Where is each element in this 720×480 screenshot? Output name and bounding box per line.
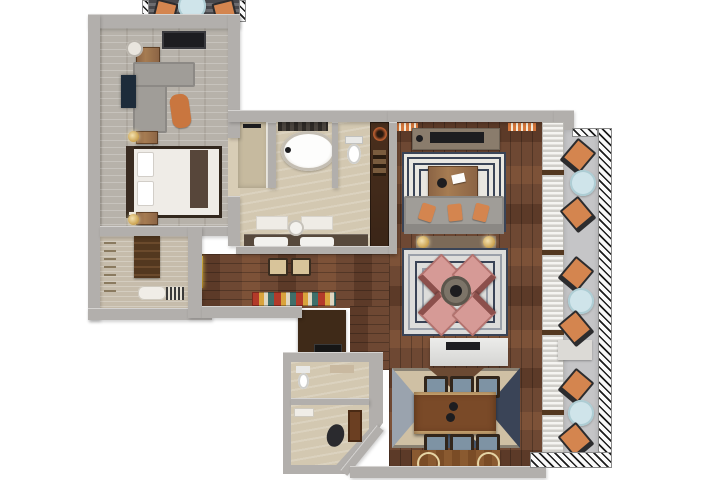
bed-pillow xyxy=(137,152,154,177)
vanity-stool xyxy=(288,220,304,236)
toilet-bowl xyxy=(347,144,361,164)
decor-bowl xyxy=(437,178,447,188)
closet-wardrobe xyxy=(134,236,160,278)
patio-table xyxy=(568,400,594,426)
wall xyxy=(188,226,202,318)
table-decor xyxy=(446,413,455,422)
copper-bowl xyxy=(373,127,387,141)
lounge-table-center xyxy=(450,285,462,297)
powder-shelf xyxy=(330,365,354,373)
nightstand-lamp xyxy=(128,131,139,142)
bath-mat xyxy=(301,216,333,230)
wall xyxy=(88,14,100,320)
table-decor xyxy=(449,402,458,411)
closet-striped-mat xyxy=(166,287,184,300)
window-mat xyxy=(508,123,536,131)
floor-plan-stage xyxy=(0,0,720,480)
powder-toilet-bowl xyxy=(298,373,309,389)
hall-stool xyxy=(291,258,311,276)
tv-screen xyxy=(430,132,484,143)
shower xyxy=(238,122,268,188)
balcony-railing-right xyxy=(598,128,612,468)
bed-headboard xyxy=(126,146,134,212)
console-lamp xyxy=(483,236,495,248)
wall xyxy=(389,122,397,254)
closet-bench-pillows xyxy=(138,286,166,300)
tub-ledge xyxy=(278,122,328,131)
wall xyxy=(202,306,302,318)
speaker xyxy=(416,135,423,142)
toilet xyxy=(345,136,363,144)
sideboard-tray xyxy=(446,342,480,350)
nightstand xyxy=(136,212,158,225)
entry-door-panel xyxy=(348,410,362,442)
shutter-post xyxy=(542,410,564,415)
desk-stool xyxy=(126,40,143,57)
foyer-bench xyxy=(294,408,314,417)
shutter-post xyxy=(542,250,564,255)
wall xyxy=(88,14,240,28)
bath-mat xyxy=(256,216,288,230)
runner-rug xyxy=(252,292,336,306)
patio-table xyxy=(568,288,594,314)
wall xyxy=(291,398,369,405)
shutter-post xyxy=(542,330,564,335)
console-lamp xyxy=(417,236,429,248)
closet-shelves xyxy=(104,242,116,298)
minibar-items xyxy=(373,150,386,176)
shower-head xyxy=(243,124,261,128)
wall xyxy=(100,226,232,236)
wall xyxy=(350,466,546,478)
bedroom-sofa-seat xyxy=(133,85,167,133)
hall-stool xyxy=(268,258,288,276)
tub-faucet xyxy=(285,147,291,153)
balcony-railing-bottom xyxy=(530,452,612,468)
nightstand-lamp xyxy=(128,214,139,225)
wall xyxy=(228,196,240,246)
balcony-railing-top xyxy=(572,128,598,137)
nightstand xyxy=(136,131,158,144)
sofa-back xyxy=(404,224,504,234)
wall xyxy=(236,246,394,254)
bed-pillow xyxy=(137,181,154,206)
patio-table xyxy=(570,170,596,196)
shutter-post xyxy=(542,170,564,175)
upper-balcony-railing-right xyxy=(239,0,246,22)
wall xyxy=(332,122,338,188)
bed-throw-blanket xyxy=(190,150,208,208)
wall xyxy=(268,122,276,188)
wall xyxy=(388,110,566,122)
bedroom-wall-art xyxy=(121,75,136,108)
bedroom-tv-panel xyxy=(162,31,206,49)
powder-toilet-tank xyxy=(296,366,310,373)
dining-table xyxy=(414,392,496,434)
bedroom-sofa-chaise xyxy=(133,62,195,87)
wall xyxy=(228,110,398,122)
sofa-pillow xyxy=(447,203,463,221)
